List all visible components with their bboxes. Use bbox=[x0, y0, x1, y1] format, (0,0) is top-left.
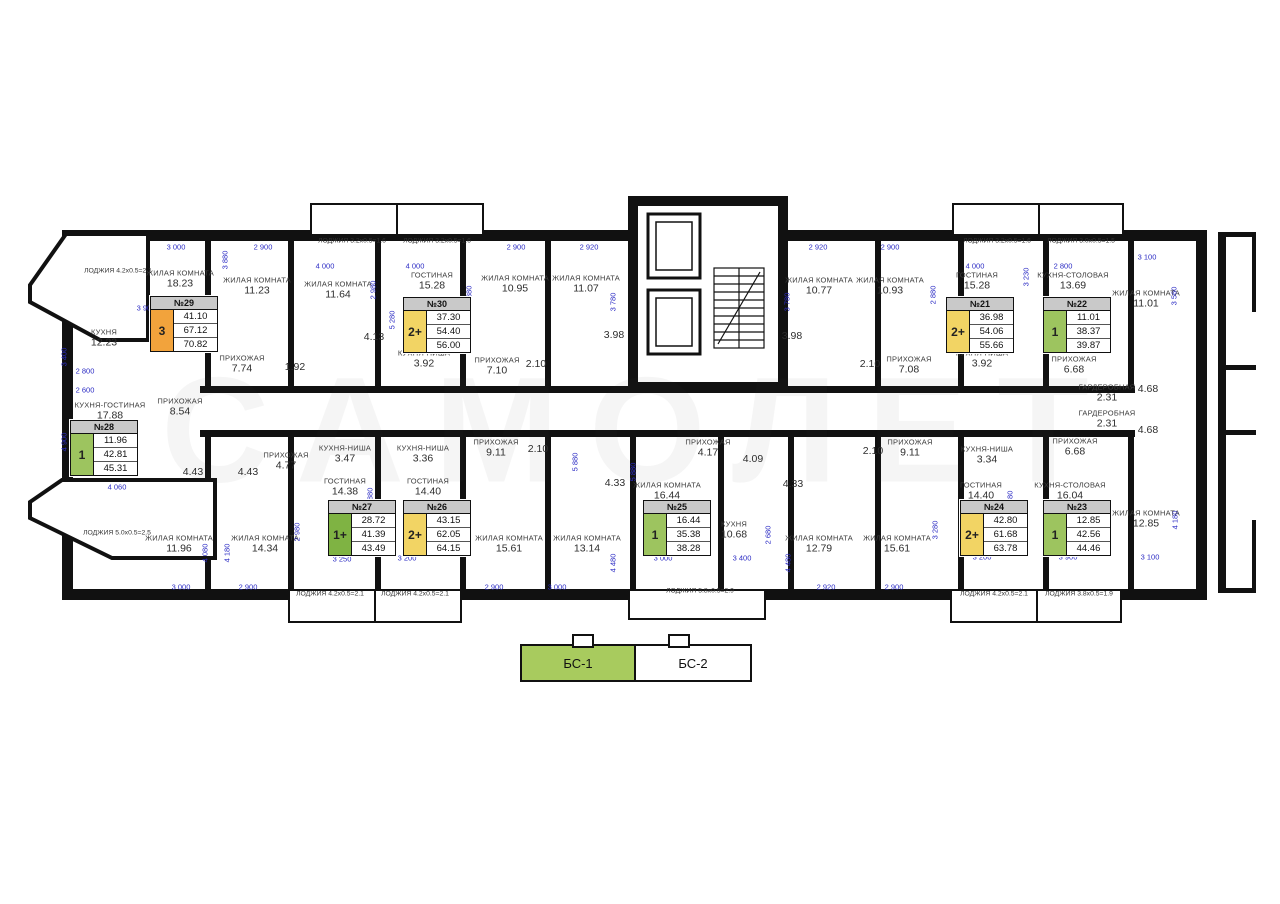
room-area: 12.79 bbox=[785, 543, 853, 555]
apartment-number: №28 bbox=[71, 421, 137, 434]
area-value: 36.98 bbox=[970, 311, 1013, 325]
room-area: 10.95 bbox=[481, 283, 549, 295]
room-area: 7.08 bbox=[886, 364, 931, 376]
room-area: 4.68 bbox=[1138, 383, 1158, 395]
room-name: ГОСТИНАЯ bbox=[407, 477, 449, 486]
room-name: КУХНЯ-ГОСТИНАЯ bbox=[75, 401, 146, 410]
room-label: ПРИХОЖАЯ6.68 bbox=[1052, 437, 1097, 458]
room-name: ЖИЛАЯ КОМНАТА bbox=[146, 269, 214, 278]
room-label: 4.13 bbox=[364, 331, 384, 343]
apartment-card-29: №29341.1067.1270.82 bbox=[150, 296, 218, 352]
room-label: ПРИХОЖАЯ7.10 bbox=[474, 356, 519, 377]
area-value: 42.56 bbox=[1067, 528, 1110, 542]
room-area: 8.54 bbox=[157, 406, 202, 418]
dimension-label: 2 980 bbox=[293, 523, 302, 542]
loggia-label: ЛОДЖИЯ 4.2x0.5=2.1 bbox=[296, 591, 364, 598]
apartment-number: №23 bbox=[1044, 501, 1110, 514]
room-label: 4.68 bbox=[1138, 424, 1158, 436]
room-label: ПРИХОЖАЯ9.11 bbox=[473, 438, 518, 459]
loggia-label: ЛОДЖИЯ 3.0x0.5=1.5 bbox=[1047, 238, 1115, 245]
room-name: ПРИХОЖАЯ bbox=[685, 438, 730, 447]
room-label: ГАРДЕРОБНАЯ2.31 bbox=[1079, 409, 1136, 430]
area-value: 54.06 bbox=[970, 325, 1013, 339]
room-name: ЖИЛАЯ КОМНАТА bbox=[553, 534, 621, 543]
floor-plan: САМОЛЕТ bbox=[0, 0, 1280, 904]
adjacent-section-wall bbox=[1252, 520, 1256, 593]
room-area: 1.92 bbox=[285, 361, 305, 373]
loggia-label: ЛОДЖИЯ 4.2x0.5=2.1 bbox=[381, 591, 449, 598]
loggia-label: ЛОДЖИЯ 3.2x0.5=1.6 bbox=[318, 238, 386, 245]
apartment-card-28: №28111.9642.8145.31 bbox=[70, 420, 138, 476]
dimension-label: 2 900 bbox=[881, 243, 900, 252]
room-area: 14.40 bbox=[407, 486, 449, 498]
adjacent-section-wall bbox=[1218, 430, 1256, 435]
room-label: ЖИЛАЯ КОМНАТА15.61 bbox=[863, 534, 931, 555]
dimension-label: 4 180 bbox=[223, 544, 232, 563]
room-label: КУХНЯ-НИША3.47 bbox=[319, 444, 371, 465]
dimension-label: 4 480 bbox=[784, 554, 793, 573]
area-value: 67.12 bbox=[174, 324, 217, 338]
room-area: 15.28 bbox=[956, 280, 998, 292]
room-label: 2.10 bbox=[526, 358, 546, 370]
area-value: 11.96 bbox=[94, 434, 137, 448]
dimension-label: 3 000 bbox=[172, 583, 191, 592]
room-area: 13.69 bbox=[1037, 280, 1108, 292]
wall bbox=[1128, 241, 1134, 386]
room-label: ПРИХОЖАЯ7.74 bbox=[219, 354, 264, 375]
room-area: 15.28 bbox=[411, 280, 453, 292]
area-value: 28.72 bbox=[352, 514, 395, 528]
room-count-badge: 2+ bbox=[947, 311, 970, 352]
area-value: 70.82 bbox=[174, 338, 217, 351]
dimension-label: 4 000 bbox=[406, 262, 425, 271]
loggia bbox=[952, 203, 1040, 236]
room-label: КУХНЯ-НИША3.36 bbox=[397, 444, 449, 465]
dimension-label: 5 880 bbox=[629, 463, 638, 482]
room-area: 10.93 bbox=[856, 285, 924, 297]
loggia-label: ЛОДЖИЯ 5.8x0.5=2.9 bbox=[666, 588, 734, 595]
room-area: 14.34 bbox=[231, 543, 299, 555]
adjacent-section-wall bbox=[1252, 232, 1256, 312]
dimension-label: 4 080 bbox=[201, 544, 210, 563]
room-name: ГОСТИНАЯ bbox=[960, 481, 1002, 490]
room-label: ПРИХОЖАЯ9.11 bbox=[887, 438, 932, 459]
room-label: ЖИЛАЯ КОМНАТА10.93 bbox=[856, 276, 924, 297]
area-value: 64.15 bbox=[427, 542, 470, 555]
room-label: ГОСТИНАЯ14.40 bbox=[960, 481, 1002, 502]
apartment-number: №27 bbox=[329, 501, 395, 514]
dimension-label: 2 600 bbox=[76, 386, 95, 395]
dimension-label: 3 400 bbox=[60, 348, 69, 367]
dimension-label: 3 230 bbox=[1022, 268, 1031, 287]
room-name: ЖИЛАЯ КОМНАТА bbox=[304, 280, 372, 289]
dimension-label: 2 900 bbox=[254, 243, 273, 252]
room-label: 4.33 bbox=[783, 478, 803, 490]
room-label: 2.10 bbox=[863, 445, 883, 457]
dimension-label: 2 900 bbox=[507, 243, 526, 252]
room-area: 3.36 bbox=[397, 453, 449, 465]
dimension-label: 3 100 bbox=[1141, 553, 1160, 562]
area-value: 42.81 bbox=[94, 448, 137, 462]
room-label: ЖИЛАЯ КОМНАТА16.44 bbox=[633, 481, 701, 502]
apartment-card-25: №25116.4435.3838.28 bbox=[643, 500, 711, 556]
legend-tab bbox=[572, 634, 594, 648]
room-area: 6.68 bbox=[1052, 446, 1097, 458]
room-label: 4.33 bbox=[605, 477, 625, 489]
loggia-label: ЛОДЖИЯ 4.2x0.5=2.1 bbox=[960, 591, 1028, 598]
room-label: КУХНЯ10.68 bbox=[721, 520, 747, 541]
room-area: 2.31 bbox=[1079, 418, 1136, 430]
legend-bs1-block: БС-1 bbox=[520, 644, 636, 682]
room-name: КУХНЯ-НИША bbox=[397, 444, 449, 453]
room-label: ЖИЛАЯ КОМНАТА11.64 bbox=[304, 280, 372, 301]
area-value: 38.37 bbox=[1067, 325, 1110, 339]
room-label: ГОСТИНАЯ15.28 bbox=[956, 271, 998, 292]
wall bbox=[1196, 230, 1207, 600]
room-label: КУХНЯ-СТОЛОВАЯ16.04 bbox=[1034, 481, 1105, 502]
apartment-number: №26 bbox=[404, 501, 470, 514]
room-name: ПРИХОЖАЯ bbox=[474, 356, 519, 365]
room-area: 14.38 bbox=[324, 486, 366, 498]
room-name: ЖИЛАЯ КОМНАТА bbox=[785, 534, 853, 543]
room-label: 4.43 bbox=[238, 466, 258, 478]
area-value: 35.38 bbox=[667, 528, 710, 542]
apartment-number: №30 bbox=[404, 298, 470, 311]
room-label: КУХНЯ-ГОСТИНАЯ17.88 bbox=[75, 401, 146, 422]
dimension-label: 5 280 bbox=[388, 311, 397, 330]
room-area: 3.92 bbox=[956, 358, 1008, 370]
loggia-label: ЛОДЖИЯ 3.2x0.5=1.6 bbox=[403, 238, 471, 245]
room-label: 3.98 bbox=[782, 330, 802, 342]
room-label: ГАРДЕРОБНАЯ2.31 bbox=[1079, 383, 1136, 404]
legend-bs1-label: БС-1 bbox=[563, 656, 592, 671]
room-area: 2.10 bbox=[528, 443, 548, 455]
loggia-label: ЛОДЖИЯ 3.8x0.5=1.9 bbox=[1045, 591, 1113, 598]
room-area: 10.68 bbox=[721, 529, 747, 541]
room-label: ЖИЛАЯ КОМНАТА11.23 bbox=[223, 276, 291, 297]
room-name: КУХНЯ-НИША bbox=[961, 445, 1013, 454]
adjacent-section-wall bbox=[1218, 232, 1226, 592]
room-area: 4.68 bbox=[1138, 424, 1158, 436]
room-name: ЖИЛАЯ КОМНАТА bbox=[223, 276, 291, 285]
room-area: 15.61 bbox=[863, 543, 931, 555]
room-label: 4.68 bbox=[1138, 383, 1158, 395]
room-area: 15.61 bbox=[475, 543, 543, 555]
room-area: 3.98 bbox=[782, 330, 802, 342]
dimension-label: 2 920 bbox=[580, 243, 599, 252]
area-value: 12.85 bbox=[1067, 514, 1110, 528]
room-area: 2.10 bbox=[863, 445, 883, 457]
loggia bbox=[396, 203, 484, 236]
dimension-label: 3 880 bbox=[221, 251, 230, 270]
room-label: 4.09 bbox=[743, 453, 763, 465]
dimension-label: 3 560 bbox=[1170, 287, 1179, 306]
room-label: ГОСТИНАЯ15.28 bbox=[411, 271, 453, 292]
room-label: ГОСТИНАЯ14.38 bbox=[324, 477, 366, 498]
apartment-card-30: №302+37.3054.4056.00 bbox=[403, 297, 471, 353]
room-name: ЖИЛАЯ КОМНАТА bbox=[481, 274, 549, 283]
apartment-card-21: №212+36.9854.0655.66 bbox=[946, 297, 1014, 353]
room-count-badge: 2+ bbox=[404, 514, 427, 555]
room-label: ЖИЛАЯ КОМНАТА10.95 bbox=[481, 274, 549, 295]
room-area: 18.23 bbox=[146, 278, 214, 290]
area-value: 44.46 bbox=[1067, 542, 1110, 555]
room-area: 3.92 bbox=[398, 358, 450, 370]
room-area: 4.33 bbox=[783, 478, 803, 490]
wall bbox=[62, 230, 73, 600]
adjacent-section-wall bbox=[1218, 588, 1256, 593]
room-label: КУХНЯ-НИША3.34 bbox=[961, 445, 1013, 466]
dimension-label: 5 880 bbox=[571, 453, 580, 472]
room-name: КУХНЯ-НИША bbox=[319, 444, 371, 453]
apartment-card-23: №23112.8542.5644.46 bbox=[1043, 500, 1111, 556]
apartment-card-27: №271+28.7241.3943.49 bbox=[328, 500, 396, 556]
room-area: 11.23 bbox=[223, 285, 291, 297]
room-name: ПРИХОЖАЯ bbox=[887, 438, 932, 447]
dimension-label: 2 800 bbox=[1054, 262, 1073, 271]
dimension-label: 2 680 bbox=[764, 526, 773, 545]
room-count-badge: 1+ bbox=[329, 514, 352, 555]
room-label: ЖИЛАЯ КОМНАТА12.79 bbox=[785, 534, 853, 555]
apartment-number: №22 bbox=[1044, 298, 1110, 311]
legend-bs2-label: БС-2 bbox=[678, 656, 707, 671]
room-name: ЖИЛАЯ КОМНАТА bbox=[145, 534, 213, 543]
dimension-label: 2 920 bbox=[817, 583, 836, 592]
room-name: ГАРДЕРОБНАЯ bbox=[1079, 383, 1136, 392]
dimension-label: 4 480 bbox=[609, 554, 618, 573]
room-name: КУХНЯ bbox=[721, 520, 747, 529]
dimension-label: 2 900 bbox=[485, 583, 504, 592]
apartment-card-24: №242+42.8061.6863.78 bbox=[960, 500, 1028, 556]
apartment-number: №21 bbox=[947, 298, 1013, 311]
room-area: 3.98 bbox=[604, 329, 624, 341]
room-count-badge: 1 bbox=[644, 514, 667, 555]
room-label: ПРИХОЖАЯ4.17 bbox=[685, 438, 730, 459]
room-name: ГОСТИНАЯ bbox=[956, 271, 998, 280]
room-name: ПРИХОЖАЯ bbox=[263, 451, 308, 460]
room-name: ПРИХОЖАЯ bbox=[886, 355, 931, 364]
room-area: 4.17 bbox=[685, 447, 730, 459]
area-value: 56.00 bbox=[427, 339, 470, 352]
room-name: ЖИЛАЯ КОМНАТА bbox=[231, 534, 299, 543]
area-value: 42.80 bbox=[984, 514, 1027, 528]
area-value: 62.05 bbox=[427, 528, 470, 542]
room-count-badge: 1 bbox=[1044, 514, 1067, 555]
room-label: 2.10 bbox=[860, 358, 880, 370]
room-label: ПРИХОЖАЯ4.77 bbox=[263, 451, 308, 472]
room-name: КУХНЯ bbox=[91, 328, 117, 337]
room-label: КУХНЯ-СТОЛОВАЯ13.69 bbox=[1037, 271, 1108, 292]
room-label: ЖИЛАЯ КОМНАТА10.77 bbox=[785, 276, 853, 297]
loggia-label: ЛОДЖИЯ 4.2x0.5=2.1 bbox=[84, 268, 152, 275]
room-name: ГОСТИНАЯ bbox=[411, 271, 453, 280]
dimension-label: 2 900 bbox=[885, 583, 904, 592]
room-name: ЖИЛАЯ КОМНАТА bbox=[633, 481, 701, 490]
room-area: 4.13 bbox=[364, 331, 384, 343]
dimension-label: 4 900 bbox=[60, 433, 69, 452]
room-label: ЖИЛАЯ КОМНАТА14.34 bbox=[231, 534, 299, 555]
room-area: 9.11 bbox=[887, 447, 932, 459]
apartment-number: №29 bbox=[151, 297, 217, 310]
room-area: 4.43 bbox=[183, 466, 203, 478]
room-area: 9.11 bbox=[473, 447, 518, 459]
room-label: ЖИЛАЯ КОМНАТА11.07 bbox=[552, 274, 620, 295]
room-area: 4.43 bbox=[238, 466, 258, 478]
room-name: ГАРДЕРОБНАЯ bbox=[1079, 409, 1136, 418]
area-value: 37.30 bbox=[427, 311, 470, 325]
loggia bbox=[1038, 203, 1124, 236]
room-label: ПРИХОЖАЯ6.68 bbox=[1051, 355, 1096, 376]
room-name: ЖИЛАЯ КОМНАТА bbox=[552, 274, 620, 283]
dimension-label: 4 180 bbox=[1171, 511, 1180, 530]
room-name: ПРИХОЖАЯ bbox=[219, 354, 264, 363]
room-area: 4.33 bbox=[605, 477, 625, 489]
area-value: 11.01 bbox=[1067, 311, 1110, 325]
room-label: ПРИХОЖАЯ8.54 bbox=[157, 397, 202, 418]
dimension-label: 4 060 bbox=[108, 483, 127, 492]
area-value: 38.28 bbox=[667, 542, 710, 555]
dimension-label: 3 100 bbox=[1138, 253, 1157, 262]
room-label: 2.10 bbox=[528, 443, 548, 455]
area-value: 43.49 bbox=[352, 542, 395, 555]
apartment-card-26: №262+43.1562.0564.15 bbox=[403, 500, 471, 556]
adjacent-section-wall bbox=[1218, 232, 1256, 237]
area-value: 61.68 bbox=[984, 528, 1027, 542]
room-name: ПРИХОЖАЯ bbox=[1051, 355, 1096, 364]
area-value: 45.31 bbox=[94, 462, 137, 475]
area-value: 39.87 bbox=[1067, 339, 1110, 352]
room-name: КУХНЯ-СТОЛОВАЯ bbox=[1034, 481, 1105, 490]
room-count-badge: 2+ bbox=[961, 514, 984, 555]
room-area: 2.10 bbox=[526, 358, 546, 370]
area-value: 55.66 bbox=[970, 339, 1013, 352]
dimension-label: 2 800 bbox=[76, 367, 95, 376]
room-label: ЖИЛАЯ КОМНАТА15.61 bbox=[475, 534, 543, 555]
dimension-label: 3 000 bbox=[167, 243, 186, 252]
room-count-badge: 1 bbox=[1044, 311, 1067, 352]
dimension-label: 2 980 bbox=[369, 281, 378, 300]
room-area: 4.77 bbox=[263, 460, 308, 472]
area-value: 63.78 bbox=[984, 542, 1027, 555]
legend-tab bbox=[668, 634, 690, 648]
dimension-label: 4 000 bbox=[966, 262, 985, 271]
room-name: ЖИЛАЯ КОМНАТА bbox=[785, 276, 853, 285]
dimension-label: 2 900 bbox=[239, 583, 258, 592]
room-area: 3.34 bbox=[961, 454, 1013, 466]
room-area: 4.09 bbox=[743, 453, 763, 465]
room-label: ПРИХОЖАЯ7.08 bbox=[886, 355, 931, 376]
dimension-label: 3 000 bbox=[548, 583, 567, 592]
room-label: 1.92 bbox=[285, 361, 305, 373]
bay-window-top-left bbox=[30, 234, 148, 340]
dimension-label: 3 780 bbox=[609, 293, 618, 312]
area-value: 54.40 bbox=[427, 325, 470, 339]
room-count-badge: 1 bbox=[71, 434, 94, 475]
dimension-label: 3 780 bbox=[783, 293, 792, 312]
loggia-label: ЛОДЖИЯ 3.2x0.5=1.6 bbox=[963, 238, 1031, 245]
room-label: ГОСТИНАЯ14.40 bbox=[407, 477, 449, 498]
legend-bs2-block: БС-2 bbox=[634, 644, 752, 682]
room-name: КУХНЯ-СТОЛОВАЯ bbox=[1037, 271, 1108, 280]
room-count-badge: 3 bbox=[151, 310, 174, 351]
dimension-label: 3 400 bbox=[733, 554, 752, 563]
room-name: ЖИЛАЯ КОМНАТА bbox=[856, 276, 924, 285]
area-value: 16.44 bbox=[667, 514, 710, 528]
room-name: ПРИХОЖАЯ bbox=[1052, 437, 1097, 446]
dimension-label: 2 880 bbox=[929, 286, 938, 305]
room-area: 10.77 bbox=[785, 285, 853, 297]
room-count-badge: 2+ bbox=[404, 311, 427, 352]
room-name: ПРИХОЖАЯ bbox=[473, 438, 518, 447]
room-name: ГОСТИНАЯ bbox=[324, 477, 366, 486]
room-area: 6.68 bbox=[1051, 364, 1096, 376]
dimension-label: 3 280 bbox=[931, 521, 940, 540]
room-label: ЖИЛАЯ КОМНАТА13.14 bbox=[553, 534, 621, 555]
room-label: 4.43 bbox=[183, 466, 203, 478]
dimension-label: 4 000 bbox=[316, 262, 335, 271]
apartment-number: №24 bbox=[961, 501, 1027, 514]
apartment-number: №25 bbox=[644, 501, 710, 514]
area-value: 41.10 bbox=[174, 310, 217, 324]
area-value: 43.15 bbox=[427, 514, 470, 528]
room-area: 7.74 bbox=[219, 363, 264, 375]
room-area: 12.23 bbox=[91, 337, 117, 349]
apartment-card-22: №22111.0138.3739.87 bbox=[1043, 297, 1111, 353]
room-area: 2.10 bbox=[860, 358, 880, 370]
room-label: КУХНЯ12.23 bbox=[91, 328, 117, 349]
room-name: ПРИХОЖАЯ bbox=[157, 397, 202, 406]
loggia bbox=[310, 203, 398, 236]
area-value: 41.39 bbox=[352, 528, 395, 542]
room-label: 3.98 bbox=[604, 329, 624, 341]
room-name: ЖИЛАЯ КОМНАТА bbox=[863, 534, 931, 543]
room-area: 3.47 bbox=[319, 453, 371, 465]
room-name: ЖИЛАЯ КОМНАТА bbox=[475, 534, 543, 543]
loggia-label: ЛОДЖИЯ 5.0x0.5=2.5 bbox=[83, 530, 151, 537]
adjacent-section-wall bbox=[1218, 365, 1256, 370]
room-area: 2.31 bbox=[1079, 392, 1136, 404]
room-label: ЖИЛАЯ КОМНАТА18.23 bbox=[146, 269, 214, 290]
dimension-label: 2 920 bbox=[809, 243, 828, 252]
room-area: 7.10 bbox=[474, 365, 519, 377]
room-area: 11.64 bbox=[304, 289, 372, 301]
